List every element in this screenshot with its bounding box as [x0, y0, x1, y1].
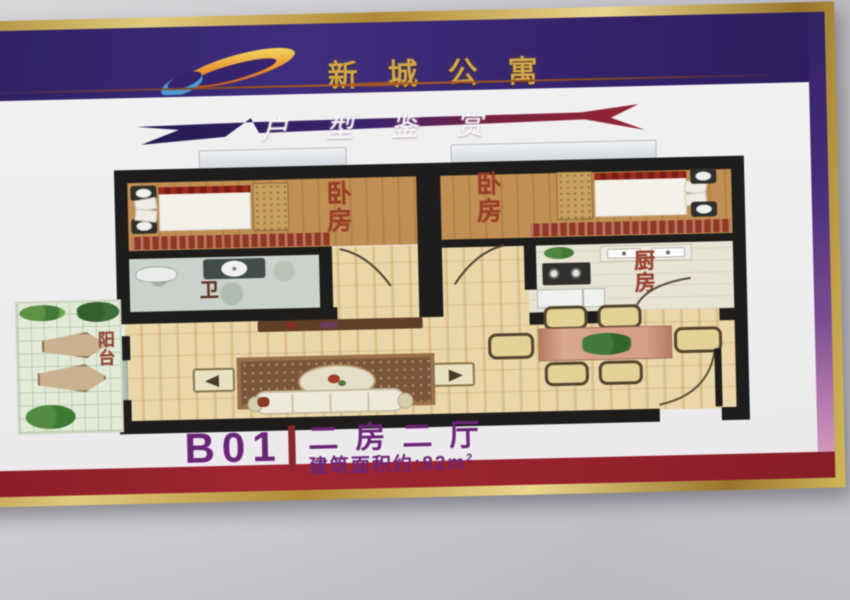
door-arc-icon	[452, 243, 507, 286]
dining-chair-icon	[488, 333, 535, 360]
plant-icon	[25, 404, 76, 429]
poster: 新城公寓 户型鉴赏	[0, 12, 835, 499]
bathroom-label: 卫	[200, 281, 221, 302]
wall	[719, 308, 734, 320]
unit-number: B01	[184, 426, 283, 470]
footboard	[556, 171, 593, 220]
plant-icon	[544, 247, 574, 260]
bed-icon	[556, 168, 717, 220]
nightstand-icon	[690, 168, 716, 184]
area-superscript: 2	[466, 452, 474, 464]
decor-icon	[320, 321, 338, 328]
bedroom-right-label: 卧房	[476, 171, 505, 225]
room-bathroom: 卫	[123, 255, 320, 313]
table-centerpiece-plant-icon	[578, 332, 635, 355]
footboard	[252, 182, 289, 231]
sofa-seam	[291, 394, 293, 412]
room-kitchen: 厨房	[528, 241, 735, 313]
lounge-chair-icon	[38, 364, 107, 394]
sofa-seam	[367, 393, 369, 411]
basin-drain	[232, 267, 236, 271]
floorplan: 卫 厨房	[114, 138, 751, 437]
vanity-basin-icon	[203, 258, 265, 279]
dining-chair-icon	[599, 360, 644, 385]
entry-door-leaf	[714, 348, 722, 406]
burner	[548, 268, 559, 279]
wall-background: { "scene": { "wall_color": "#c9c8cd" }, …	[0, 0, 850, 600]
cushion-icon	[257, 397, 269, 407]
caption-divider	[288, 425, 296, 471]
entry-door-arc-icon	[656, 350, 719, 407]
door-arc-icon	[338, 246, 393, 289]
area-value: 建筑面积约:82m	[309, 452, 467, 477]
nightstand-icon	[691, 201, 717, 217]
sink-tap	[622, 251, 626, 255]
wall	[319, 246, 333, 307]
poster-content: 户型鉴赏 卫	[0, 82, 835, 473]
layout-type: 二房二厅	[308, 421, 497, 456]
banner-text: 户型鉴赏	[261, 102, 522, 147]
door-arc-icon	[633, 276, 694, 309]
dining-chair-icon	[545, 361, 590, 386]
poster-frame: 新城公寓 户型鉴赏	[0, 1, 846, 508]
plant-icon	[19, 305, 65, 322]
speaker-cone	[205, 375, 219, 387]
bed-icon	[130, 182, 289, 234]
bedroom-left-label: 卧房	[326, 181, 355, 235]
dining-table-icon	[538, 325, 673, 361]
burner	[570, 267, 581, 278]
wall	[722, 407, 750, 421]
balcony-label: 阳台	[98, 331, 118, 367]
wall	[524, 242, 537, 290]
toilet-icon	[135, 266, 177, 283]
speaker-cone	[449, 369, 463, 381]
sofa-seam	[329, 393, 331, 411]
sofa-icon	[253, 388, 406, 416]
lounge-chair-icon	[42, 332, 107, 360]
rug-leaf	[338, 380, 346, 386]
sink-tap	[666, 250, 670, 254]
speaker-icon	[193, 368, 236, 393]
pillow-icon	[134, 209, 157, 223]
stove-icon	[542, 262, 591, 285]
vase-icon	[286, 322, 296, 329]
caption: B01 二房二厅 建筑面积约:82m2	[184, 421, 497, 481]
plant-icon	[75, 301, 119, 322]
speaker-icon	[433, 362, 476, 387]
area-text: 建筑面积约:82m2	[309, 451, 497, 478]
room-balcony: 阳台	[15, 299, 124, 434]
